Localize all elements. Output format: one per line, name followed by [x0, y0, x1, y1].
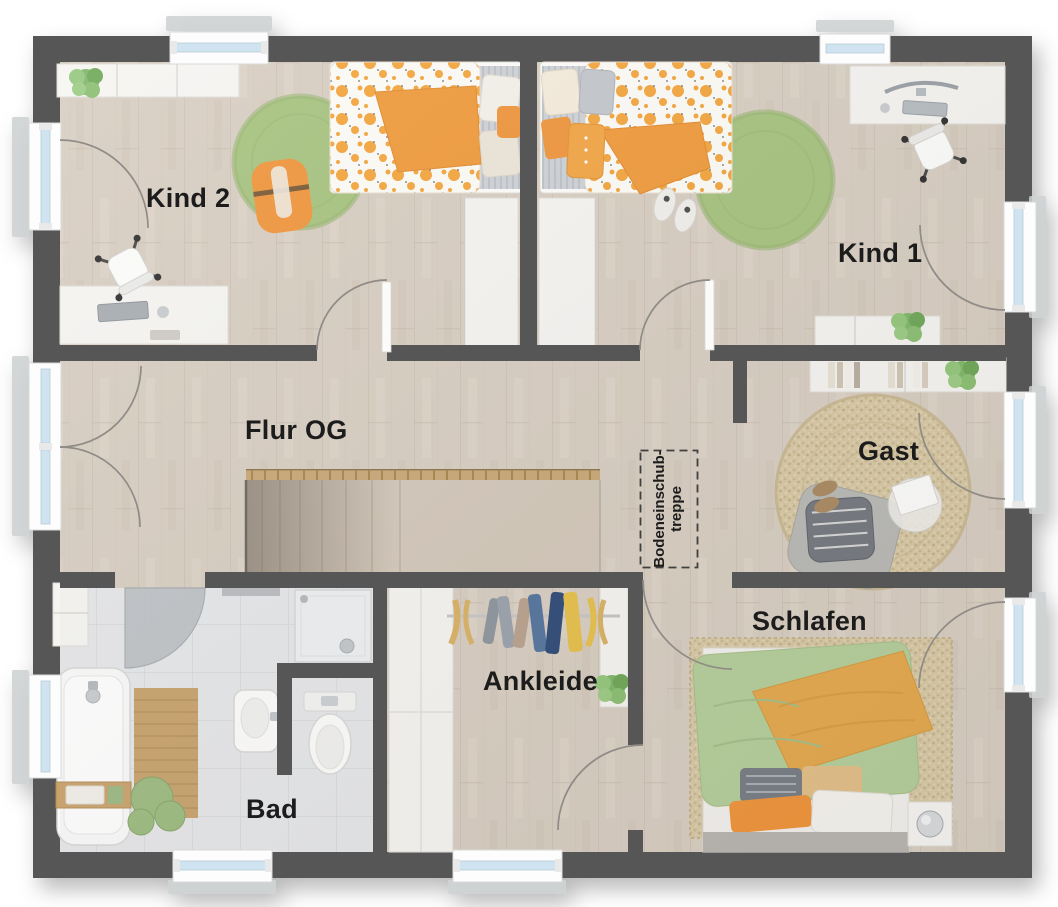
- window-right-schlafen: [1004, 598, 1036, 692]
- attic-hatch-label-line1: Bodeneinschub-: [651, 450, 668, 568]
- window-left-flur: [29, 363, 61, 530]
- wall-kids-flur: [387, 345, 640, 361]
- room-label-schlafen: Schlafen: [752, 606, 867, 636]
- window-bottom-bad: [173, 850, 272, 882]
- room-label-kind1: Kind 1: [838, 238, 922, 268]
- window-bottom-ankleide: [453, 850, 562, 882]
- door-leaf-kind2: [382, 282, 391, 352]
- room-label-gast: Gast: [858, 436, 919, 466]
- wall-bad-ankleide: [373, 572, 387, 852]
- window-right-kind1: [1004, 202, 1036, 312]
- floorplan-stage: Bodeneinschub- treppe Kind 2 Kind 1 Flur…: [0, 0, 1058, 907]
- wall-ankleide-right-lower: [628, 830, 643, 852]
- wall-kids-divider: [520, 62, 537, 352]
- wall-ankleide-right: [628, 588, 643, 745]
- window-left-bad: [29, 675, 61, 778]
- room-label-flur: Flur OG: [245, 415, 348, 445]
- wall-gast-top: [710, 345, 1006, 361]
- window-top-kind1: [820, 34, 890, 64]
- room-label-ankleide: Ankleide: [483, 666, 598, 696]
- wall-wc-stub: [277, 663, 292, 775]
- floorplan: Bodeneinschub- treppe Kind 2 Kind 1 Flur…: [12, 16, 1046, 894]
- room-label-bad: Bad: [246, 794, 298, 824]
- floorplan-drawing: Bodeneinschub- treppe Kind 2 Kind 1 Flur…: [0, 0, 1058, 907]
- room-label-kind2: Kind 2: [146, 183, 230, 213]
- wall-flur-bottom: [205, 572, 643, 588]
- wall-schlafen-top: [732, 572, 1006, 588]
- door-leaf-kind1: [705, 280, 714, 350]
- attic-hatch-label-line2: treppe: [668, 486, 685, 532]
- window-right-gast: [1004, 392, 1036, 508]
- wall-bad-top-left: [60, 572, 115, 588]
- wall-gast-stub: [733, 361, 747, 423]
- wall-kind2-flur: [60, 345, 317, 361]
- window-top-kind2: [170, 32, 268, 64]
- window-left-kind2: [29, 123, 61, 230]
